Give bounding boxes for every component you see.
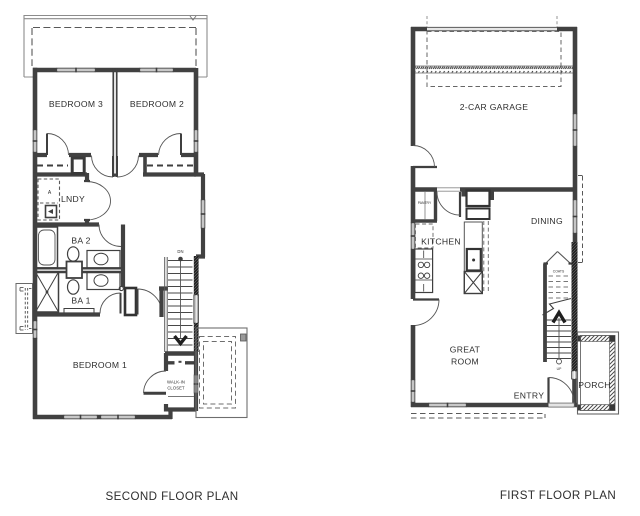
svg-text:DINING: DINING [531,216,563,226]
svg-text:DN: DN [177,249,183,254]
svg-text:BEDROOM 3: BEDROOM 3 [49,99,103,109]
svg-text:SECOND FLOOR PLAN: SECOND FLOOR PLAN [105,490,238,503]
svg-text:BEDROOM 1: BEDROOM 1 [73,360,127,370]
svg-text:UP: UP [557,367,562,371]
svg-text:LNDY: LNDY [61,194,85,204]
svg-text:COATS: COATS [553,270,565,274]
svg-text:FIRST FLOOR PLAN: FIRST FLOOR PLAN [500,489,616,502]
svg-text:A: A [48,190,52,196]
svg-text:2-CAR GARAGE: 2-CAR GARAGE [460,102,529,112]
svg-text:CLOSET: CLOSET [167,386,185,391]
svg-text:WALK-IN: WALK-IN [167,380,185,385]
svg-text:BA 2: BA 2 [71,236,90,246]
svg-text:KITCHEN: KITCHEN [421,237,461,247]
svg-text:PANTRY: PANTRY [418,201,432,205]
svg-text:BA 1: BA 1 [71,296,90,306]
svg-text:GREAT: GREAT [450,345,481,355]
svg-text:BEDROOM 2: BEDROOM 2 [130,99,184,109]
svg-text:PORCH: PORCH [578,380,611,390]
svg-text:ROOM: ROOM [451,357,479,367]
svg-text:ENTRY: ENTRY [514,391,544,401]
